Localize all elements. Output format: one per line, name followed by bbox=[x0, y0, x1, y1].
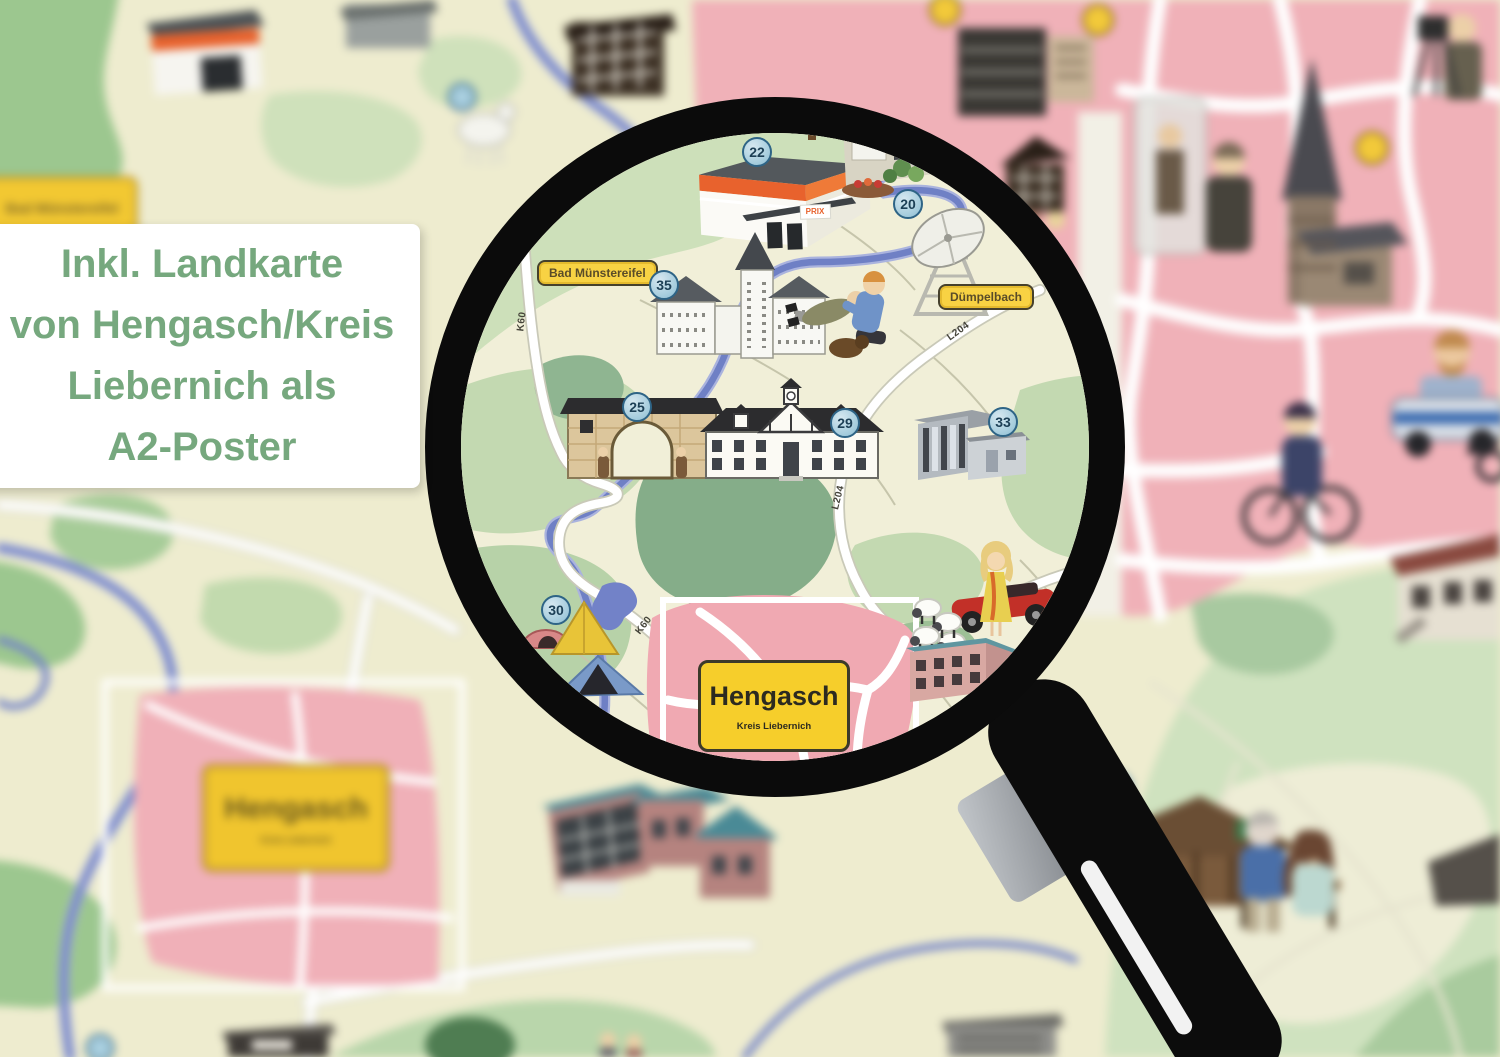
promo-box: Inkl. Landkarte von Hengasch/Kreis Liebe… bbox=[0, 224, 420, 488]
marker-20: 20 bbox=[893, 189, 923, 219]
marker-35: 35 bbox=[649, 270, 679, 300]
poster: Bad Münstereifel Hengasch Kreis Lieberni… bbox=[0, 0, 1500, 1057]
supermarket-bg-icon bbox=[146, 9, 269, 95]
marker-29: 29 bbox=[830, 408, 860, 438]
display-case-icon bbox=[1134, 98, 1206, 254]
town-sign-background: Hengasch Kreis Liebernich bbox=[202, 764, 390, 872]
marker-25: 25 bbox=[622, 392, 652, 422]
magnifier-lens: Bad Münstereifel Dümpelbach Hengasch Kre… bbox=[425, 97, 1125, 797]
town-sign-name: Hengasch bbox=[709, 681, 838, 712]
marker-33: 33 bbox=[988, 407, 1018, 437]
marker-22: 22 bbox=[742, 137, 772, 167]
town-sign-hengasch: Hengasch Kreis Liebernich bbox=[698, 660, 850, 752]
shop-sign: PRIX bbox=[800, 207, 830, 216]
shed-bg-icon bbox=[340, 0, 438, 48]
place-label-bad-muenstereifel: Bad Münstereifel bbox=[537, 260, 658, 286]
promo-line-1: Inkl. Landkarte bbox=[0, 234, 420, 295]
marker-30: 30 bbox=[541, 595, 571, 625]
promo-line-2: von Hengasch/Kreis bbox=[0, 295, 420, 356]
half-timbered-house-icon bbox=[564, 14, 676, 96]
town-sign-district: Kreis Liebernich bbox=[737, 721, 811, 732]
promo-line-4: A2-Poster bbox=[0, 417, 420, 478]
lens-map: Bad Münstereifel Dümpelbach Hengasch Kre… bbox=[425, 97, 1125, 797]
town-sign-district: Kreis Liebernich bbox=[261, 835, 332, 845]
place-label-duempelbach: Dümpelbach bbox=[938, 284, 1034, 310]
town-sign-name: Hengasch bbox=[224, 792, 367, 826]
farm-building-icon bbox=[906, 638, 1022, 702]
promo-line-3: Liebernich als bbox=[0, 356, 420, 417]
